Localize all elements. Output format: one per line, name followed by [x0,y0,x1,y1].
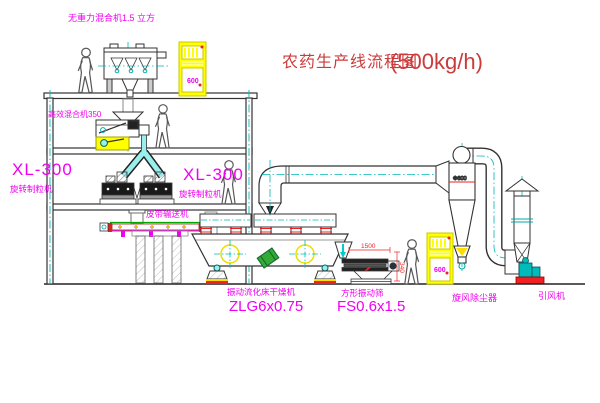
control-cabinet-1: 600 [179,42,206,96]
granulator-right [134,172,174,204]
cyclone-size-label: Φ600 [453,176,467,182]
indicator-dot [446,272,449,275]
label-fan: 引风机 [538,290,565,301]
cabinet1-display: 600 [187,78,199,85]
cad-drawing: 600 [0,0,600,403]
cabinet2-display: 600 [434,267,446,274]
dim-sieve-length: 1500 [361,243,376,250]
fan-base [516,277,544,284]
support-column [136,236,145,283]
worker-figure-floor1 [155,105,169,148]
support-column [154,236,163,283]
label-dryer-name: 振动流化床干燥机 [227,287,296,297]
label-cyclone: 旋风除尘器 [452,292,497,303]
label-belt-conveyor: 皮带输送机 [146,209,189,219]
dryer-foot [206,265,336,284]
label-sieve-name: 方形振动筛 [341,288,384,298]
label-gravity-mixer: 无重力混合机1.5 立方 [68,12,155,23]
label-high-eff-mixer: 高效混合机350 [48,109,102,119]
mixer-350 [96,120,149,152]
label-granulator-right-model: XL-300 [183,165,244,184]
label-granulator-right-name: 旋转制粒机 [179,189,222,199]
worker-figure-ground [404,240,418,284]
square-vibrating-sieve [342,259,399,284]
label-sieve-model: FS0.6x1.5 [337,298,405,315]
belt-conveyor [100,210,203,283]
dryer-ports [200,227,332,234]
dim-sieve-height: 340 [398,262,405,273]
label-dryer-model: ZLG6x0.75 [229,298,303,315]
control-cabinet-2: 600 [427,233,453,284]
flow-diagram-svg: 600 [0,0,600,403]
support-column [172,236,181,283]
granulator-left [100,172,136,204]
indicator-dot [199,84,202,87]
cyclone-inlet-reducer [436,161,449,193]
worker-figure-roof [78,48,92,92]
page-title-capacity: (500kg/h) [390,49,483,74]
exhaust-duct [259,160,449,217]
fluid-bed-dryer [192,212,352,284]
indicator-dot [201,46,204,49]
rain-cap [506,179,538,191]
indicator-dot [448,237,451,240]
label-granulator-left-model: XL-300 [12,160,73,179]
label-granulator-left-name: 旋转制粒机 [10,184,53,194]
